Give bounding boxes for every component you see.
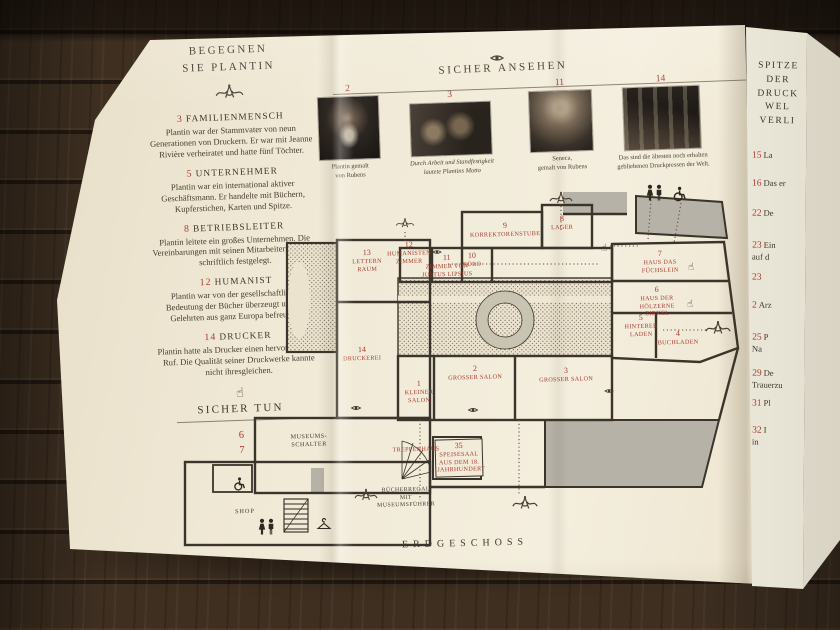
room-label-grosser-salon-2: 2GROSSER SALON: [440, 364, 510, 382]
room-label-buchladen: 4BUCHLADEN: [653, 329, 703, 347]
printers-mark-ornament-icon: [355, 489, 377, 500]
restroom-woman-icon: [259, 519, 265, 535]
right-panel-entry: 25P Na: [752, 332, 806, 356]
right-panel-entry: 31Pl: [752, 398, 806, 411]
right-panel-entry: 2Arz: [752, 300, 806, 313]
right-panel-entry: 23: [752, 272, 806, 285]
room-label-lager: 8LAGER: [542, 214, 582, 232]
printers-mark-ornament-icon: [396, 218, 414, 227]
room-label-haus-das-fuechslein: 7HAUS DAS FÜCHSLEIN: [625, 249, 696, 275]
room-label-buero: 10BÜRO: [454, 252, 490, 269]
hand-icon: ☝: [601, 243, 607, 254]
eye-icon: [491, 56, 503, 60]
printers-mark-ornament-icon: [706, 321, 730, 333]
right-panel-heading: SPITZE DER DRUCK WEL VERLI: [751, 60, 804, 130]
restroom-man-icon: [269, 519, 274, 535]
photo-of-brochure: BEGEGNEN SIE PLANTIN 3FAMILIENMENSCH Pla…: [0, 0, 840, 630]
museum-desk-label: MUSEUMS- SCHALTER: [286, 432, 332, 449]
right-panel-entry: 32I in: [752, 425, 806, 449]
eye-icon: [352, 406, 361, 409]
wheelchair-icon: [235, 477, 245, 490]
room-label-grosser-salon-3: 3GROSSER SALON: [531, 366, 601, 384]
room-label-treppenhaus: TREPPENHAUS: [386, 445, 446, 454]
bookshelf-label: BÜCHERREGAL MIT MUSEUMSFÜHRER: [376, 486, 437, 510]
brochure-main-page: BEGEGNEN SIE PLANTIN 3FAMILIENMENSCH Pla…: [0, 0, 840, 630]
shop-label: SHOP: [230, 508, 260, 517]
right-panel-entry: 22De: [752, 208, 806, 221]
room-label-korrektorenstube: 9KORREKTORENSTUBE: [465, 221, 545, 240]
room-label-druckerei: 14DRUCKEREI: [337, 345, 387, 363]
eye-icon: [469, 408, 478, 411]
room-label-speisesaal: 35SPEISESAAL AUS DEM 18. JAHRHUNDERT: [435, 438, 484, 477]
coat-hanger-icon: [318, 519, 330, 529]
right-panel-entry: 29De Trauerzu: [752, 368, 806, 392]
stairs-icon: [284, 499, 308, 532]
right-panel-entry: 16Das er: [752, 178, 806, 191]
room-label-kleiner-salon: 1KLEINER SALON: [399, 379, 440, 404]
floorplan-drawing: ☝ ☝ ☝: [0, 0, 840, 630]
right-panel-entry: 23Ein auf d: [752, 240, 806, 264]
right-panel-entry: 15La: [752, 150, 806, 163]
printers-mark-ornament-icon: [513, 496, 537, 508]
